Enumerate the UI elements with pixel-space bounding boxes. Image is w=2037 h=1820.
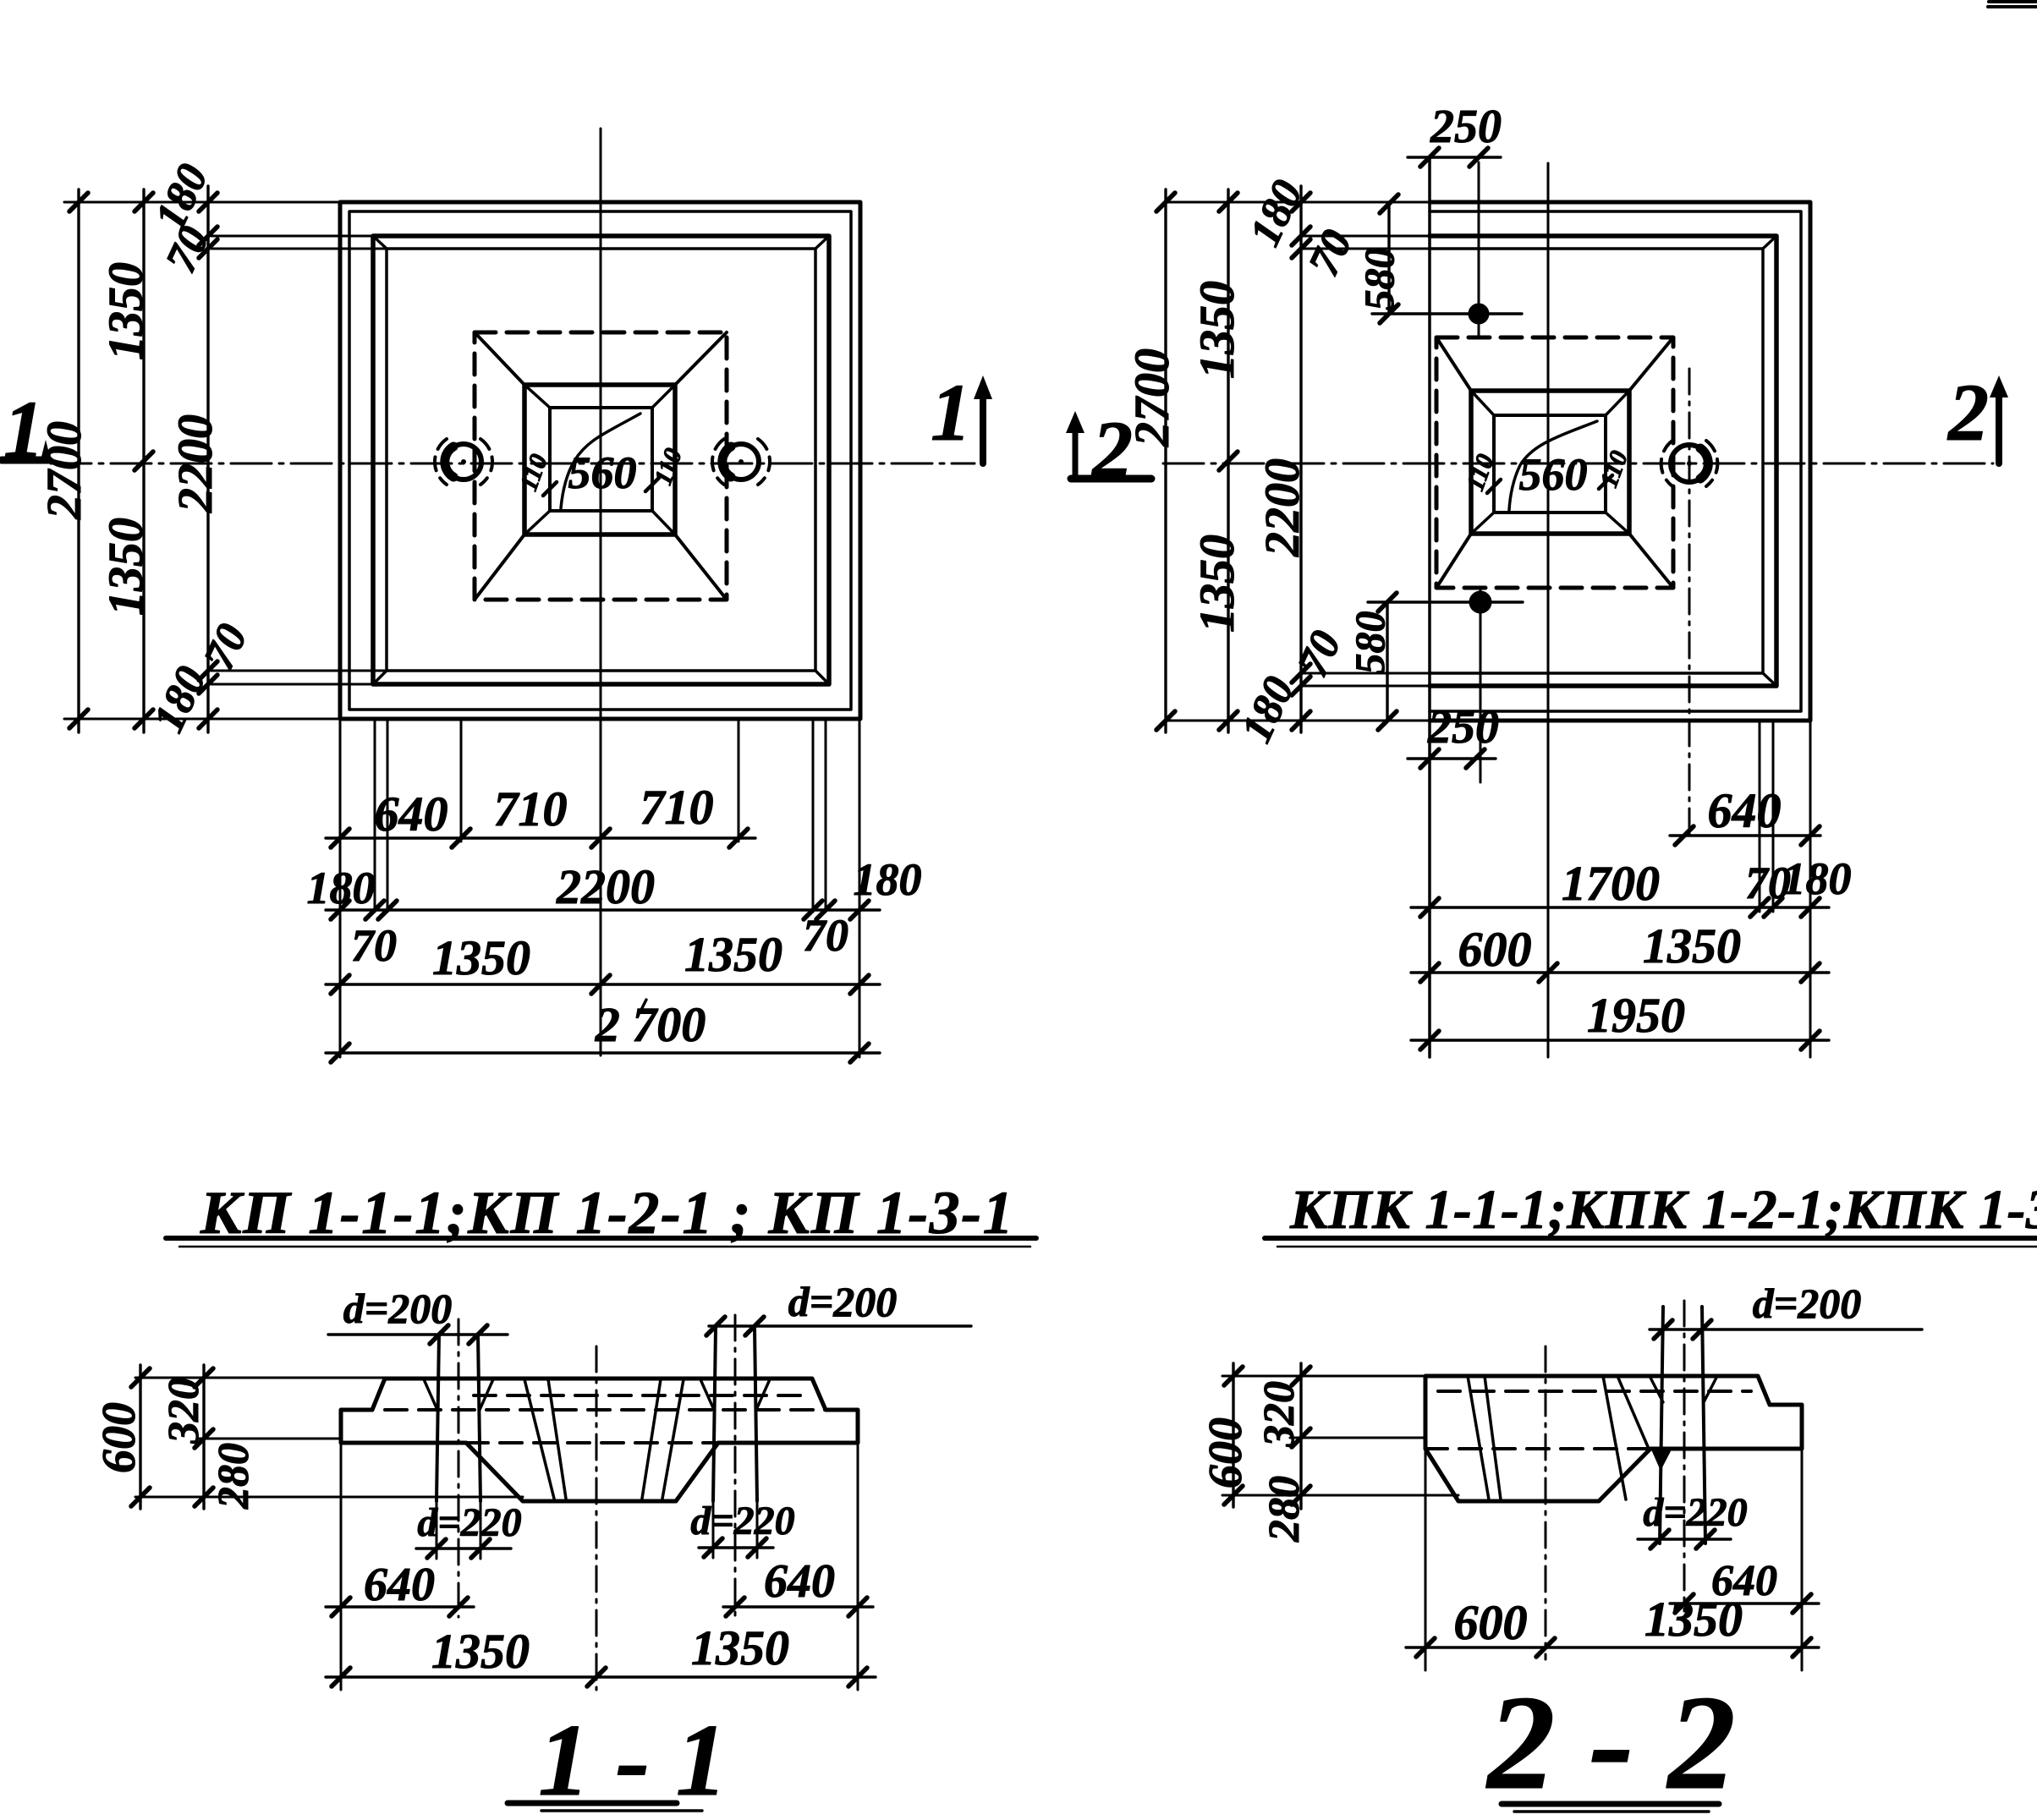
svg-text:1350: 1350 — [1189, 281, 1244, 379]
svg-text:560: 560 — [1519, 449, 1588, 500]
svg-text:d=220: d=220 — [417, 1500, 521, 1545]
svg-text:640: 640 — [375, 787, 448, 841]
svg-text:2200: 2200 — [1255, 458, 1309, 557]
svg-text:580: 580 — [1355, 248, 1403, 311]
svg-text:250: 250 — [1427, 701, 1499, 754]
svg-text:2200: 2200 — [167, 414, 222, 513]
svg-text:580: 580 — [1346, 611, 1393, 675]
svg-text:1350: 1350 — [684, 927, 782, 982]
svg-text:180: 180 — [1783, 853, 1852, 904]
svg-text:d=200: d=200 — [788, 1278, 898, 1325]
svg-text:180: 180 — [854, 854, 922, 905]
svg-text:320: 320 — [1255, 1381, 1304, 1448]
svg-text:1350: 1350 — [1643, 918, 1741, 973]
svg-text:280: 280 — [1260, 1476, 1309, 1543]
svg-text:d=200: d=200 — [343, 1285, 453, 1332]
svg-text:2700: 2700 — [1124, 348, 1179, 447]
svg-text:1950: 1950 — [1587, 988, 1685, 1043]
svg-text:2: 2 — [1946, 367, 1989, 458]
svg-text:250: 250 — [1430, 101, 1502, 153]
svg-text:560: 560 — [568, 447, 637, 498]
svg-text:180: 180 — [307, 863, 376, 913]
svg-text:710: 710 — [640, 780, 714, 835]
svg-text:600: 600 — [1454, 1595, 1528, 1650]
svg-text:d=220: d=220 — [690, 1499, 794, 1543]
svg-text:1350: 1350 — [432, 930, 530, 985]
svg-text:600: 600 — [93, 1402, 145, 1473]
svg-text:2200: 2200 — [556, 859, 655, 914]
svg-text:2 - 2: 2 - 2 — [1485, 1667, 1735, 1817]
svg-text:640: 640 — [1708, 783, 1782, 838]
svg-text:710: 710 — [494, 781, 568, 836]
svg-text:2700: 2700 — [36, 421, 91, 520]
svg-text:2 700: 2 700 — [595, 997, 706, 1052]
svg-text:320: 320 — [160, 1378, 208, 1444]
svg-text:1350: 1350 — [98, 518, 153, 616]
svg-text:640: 640 — [764, 1555, 835, 1608]
svg-text:1: 1 — [931, 367, 971, 458]
svg-text:1350: 1350 — [1189, 534, 1244, 633]
svg-text:1350: 1350 — [431, 1624, 530, 1679]
svg-text:d=220: d=220 — [1643, 1490, 1747, 1535]
svg-text:70: 70 — [351, 920, 397, 971]
svg-text:600: 600 — [1458, 922, 1532, 977]
svg-text:640: 640 — [364, 1559, 435, 1611]
svg-text:1700: 1700 — [1562, 856, 1660, 911]
svg-text:1350: 1350 — [1644, 1592, 1743, 1647]
svg-text:70: 70 — [803, 910, 848, 961]
svg-text:1350: 1350 — [98, 262, 153, 360]
svg-text:1350: 1350 — [691, 1620, 789, 1675]
svg-text:d=200: d=200 — [1753, 1280, 1862, 1327]
svg-text:600: 600 — [1200, 1417, 1252, 1488]
svg-text:280: 280 — [210, 1443, 258, 1510]
svg-text:КПК 1-1-1;КПК 1-2-1;КПК 1-3-1: КПК 1-1-1;КПК 1-2-1;КПК 1-3-1 — [1289, 1179, 2037, 1241]
